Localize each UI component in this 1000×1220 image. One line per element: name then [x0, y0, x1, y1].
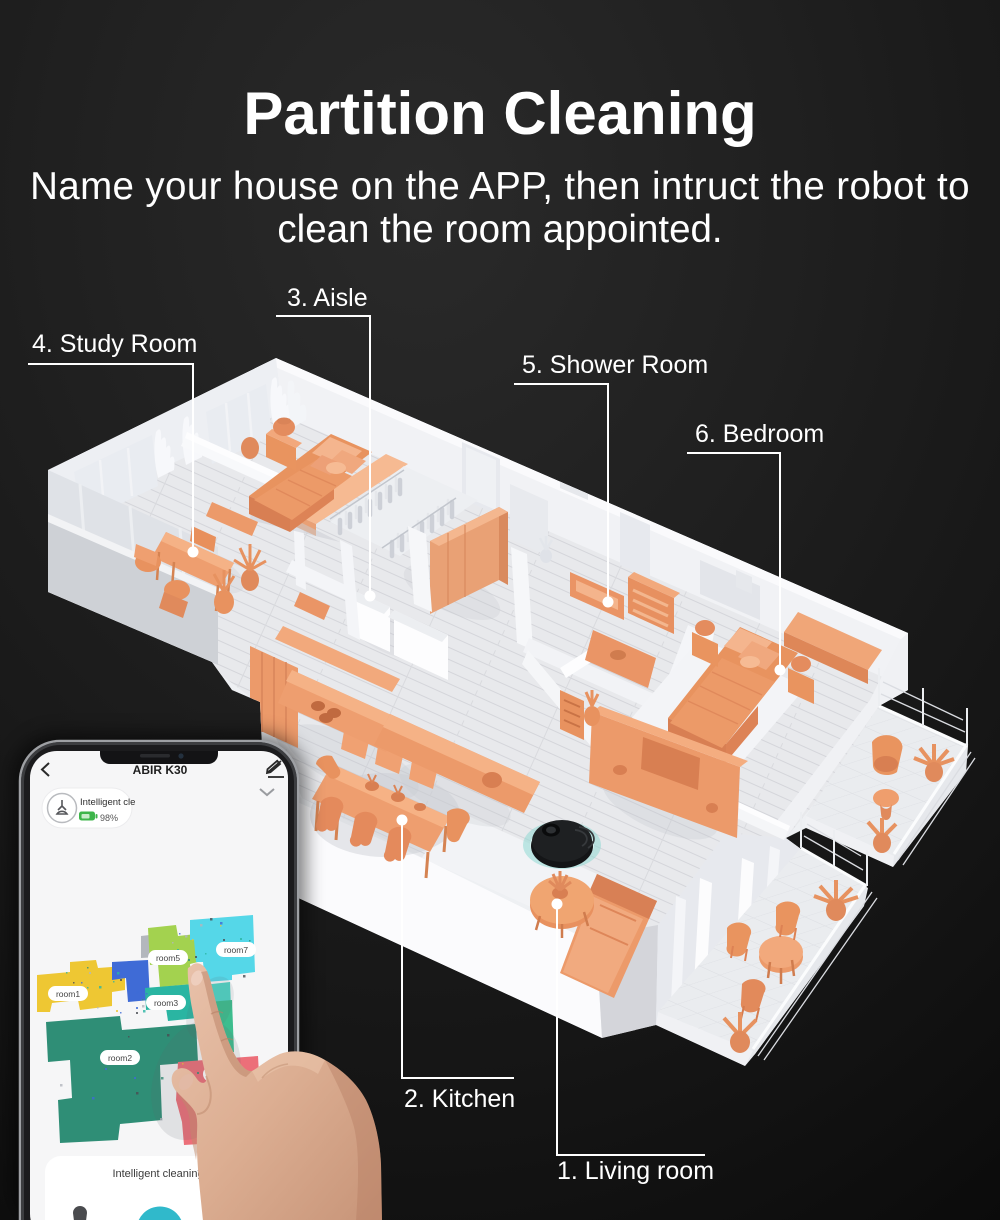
svg-text:clean the room appointed.: clean the room appointed. [277, 208, 722, 251]
svg-text:room7: room7 [224, 945, 248, 955]
svg-text:6. Bedroom: 6. Bedroom [695, 420, 824, 448]
svg-text:5. Shower Room: 5. Shower Room [522, 351, 708, 379]
svg-text:ABIR K30: ABIR K30 [133, 763, 188, 777]
svg-text:2. Kitchen: 2. Kitchen [404, 1085, 515, 1113]
svg-text:3. Aisle: 3. Aisle [287, 284, 368, 312]
svg-text:98%: 98% [100, 813, 118, 823]
svg-text:Partition Cleaning: Partition Cleaning [243, 80, 756, 147]
svg-text:Intelligent cle: Intelligent cle [80, 797, 135, 808]
svg-text:4. Study Room: 4. Study Room [32, 330, 197, 358]
svg-text:room3: room3 [154, 998, 178, 1008]
svg-text:room1: room1 [56, 989, 80, 999]
svg-text:room2: room2 [108, 1053, 132, 1063]
svg-text:1. Living room: 1. Living room [557, 1157, 714, 1185]
svg-text:Intelligent cleaning: Intelligent cleaning [112, 1168, 203, 1180]
svg-text:room5: room5 [156, 953, 180, 963]
svg-text:Name your house on the APP, th: Name your house on the APP, then intruct… [30, 165, 970, 208]
